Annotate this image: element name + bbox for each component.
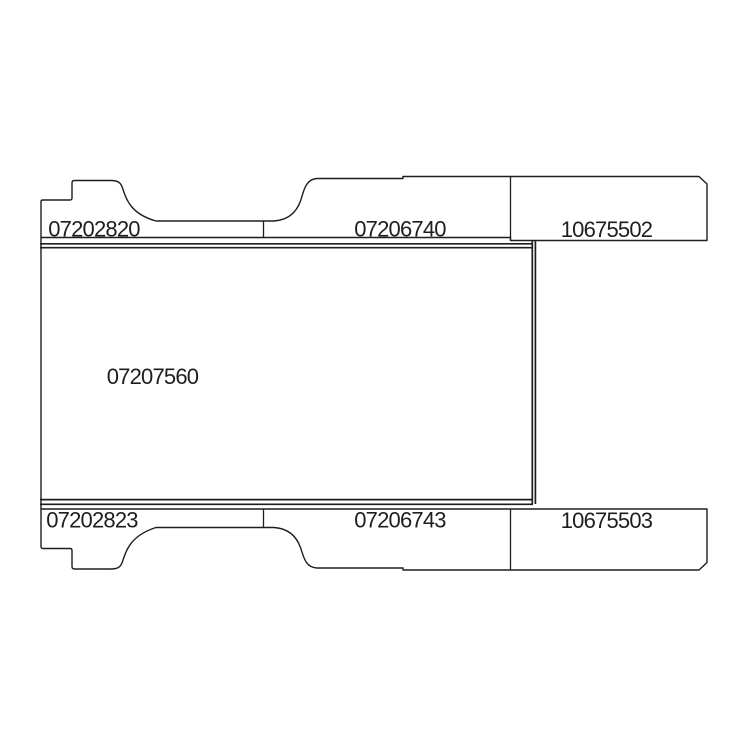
parts-diagram: 07202820 07206740 10675502 07207560 0720…: [0, 0, 750, 750]
part-label-top-middle: 07206740: [354, 217, 446, 242]
part-label-top-left: 07202820: [48, 217, 140, 242]
part-label-bottom-middle: 07206743: [354, 508, 446, 533]
part-label-bottom-right: 10675503: [561, 508, 653, 533]
part-label-center: 07207560: [107, 364, 199, 389]
part-label-top-right: 10675502: [561, 217, 653, 242]
part-label-bottom-left: 07202823: [46, 508, 138, 533]
parts-diagram-canvas: 07202820 07206740 10675502 07207560 0720…: [0, 0, 750, 750]
